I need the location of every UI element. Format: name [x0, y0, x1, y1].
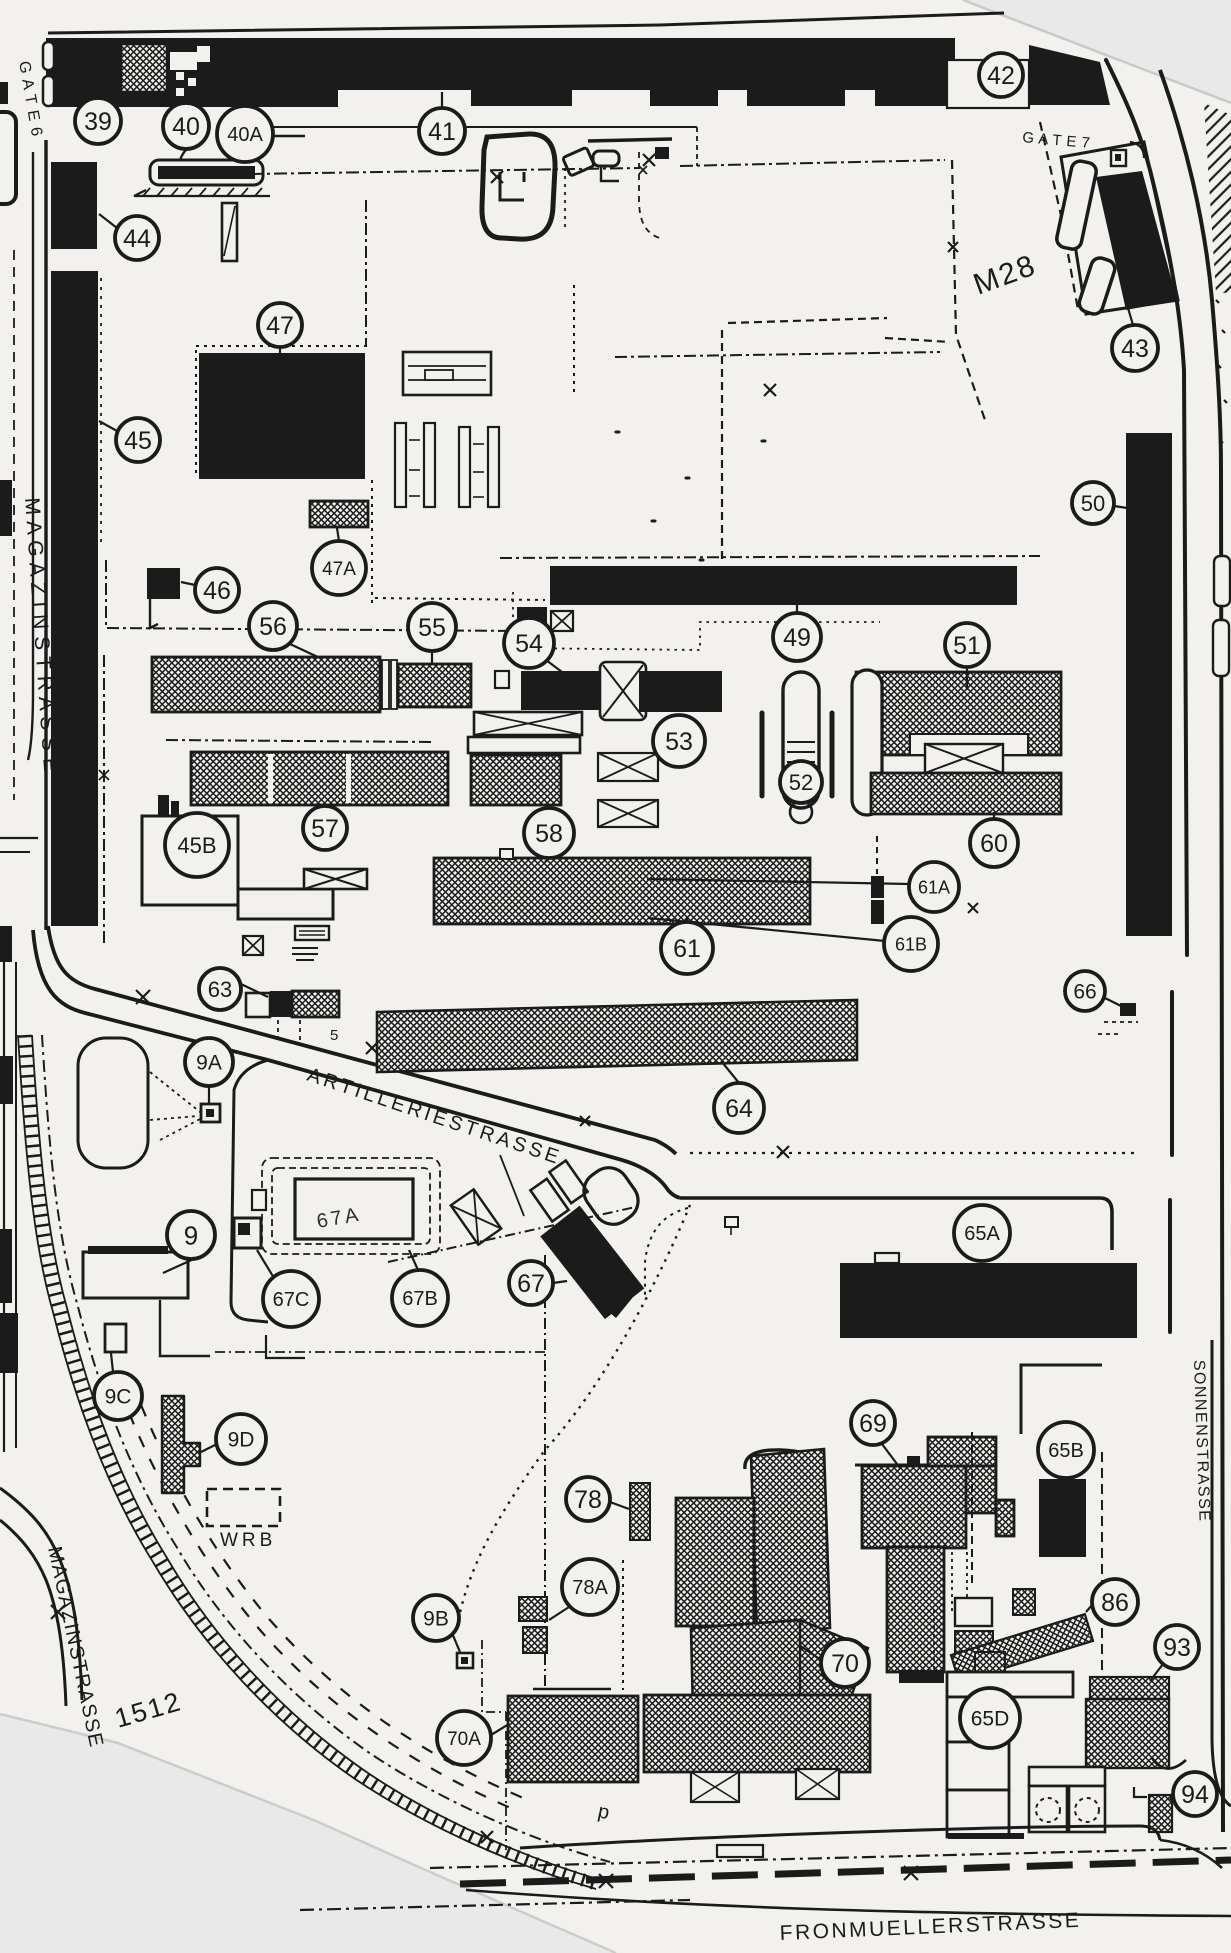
svg-text:56: 56 — [259, 613, 287, 641]
svg-text:78: 78 — [574, 1486, 602, 1514]
svg-text:58: 58 — [535, 820, 563, 848]
svg-text:65B: 65B — [1048, 1440, 1084, 1462]
svg-text:49: 49 — [783, 624, 811, 652]
svg-text:63: 63 — [208, 977, 232, 1002]
svg-text:64: 64 — [725, 1095, 753, 1123]
svg-text:69: 69 — [859, 1410, 887, 1438]
svg-text:WRB: WRB — [220, 1530, 276, 1551]
svg-text:61B: 61B — [895, 934, 927, 954]
svg-text:93: 93 — [1163, 1634, 1191, 1662]
svg-text:60: 60 — [980, 830, 1008, 858]
svg-text:61: 61 — [673, 935, 701, 963]
svg-text:65D: 65D — [971, 1708, 1010, 1731]
svg-text:78A: 78A — [572, 1577, 608, 1599]
svg-text:9C: 9C — [105, 1386, 132, 1409]
svg-text:70A: 70A — [447, 1729, 481, 1750]
svg-text:86: 86 — [1101, 1589, 1129, 1617]
svg-text:51: 51 — [953, 632, 981, 660]
svg-text:50: 50 — [1081, 491, 1105, 516]
svg-text:57: 57 — [311, 815, 339, 843]
svg-text:45: 45 — [124, 427, 152, 455]
svg-text:44: 44 — [123, 225, 151, 253]
svg-text:43: 43 — [1121, 335, 1149, 363]
svg-text:53: 53 — [665, 728, 693, 756]
svg-text:9A: 9A — [196, 1052, 222, 1075]
svg-text:40: 40 — [172, 113, 200, 141]
svg-text:70: 70 — [831, 1650, 859, 1678]
svg-text:67C: 67C — [273, 1289, 310, 1311]
svg-text:67: 67 — [517, 1270, 545, 1298]
svg-text:54: 54 — [515, 630, 543, 658]
svg-text:66: 66 — [1073, 981, 1096, 1004]
svg-text:5: 5 — [330, 1027, 338, 1044]
svg-text:45B: 45B — [177, 833, 216, 858]
svg-text:9B: 9B — [423, 1608, 449, 1631]
svg-text:9: 9 — [184, 1220, 198, 1250]
svg-text:47: 47 — [266, 312, 294, 340]
svg-text:39: 39 — [84, 108, 112, 136]
svg-text:52: 52 — [789, 770, 813, 795]
svg-text:65A: 65A — [964, 1223, 1000, 1245]
svg-text:9D: 9D — [228, 1429, 255, 1452]
svg-text:47A: 47A — [322, 559, 356, 580]
svg-text:40A: 40A — [227, 124, 263, 146]
svg-text:42: 42 — [987, 62, 1015, 90]
svg-text:61A: 61A — [918, 877, 950, 897]
svg-text:55: 55 — [418, 614, 446, 642]
svg-text:94: 94 — [1181, 1781, 1209, 1809]
svg-text:67B: 67B — [402, 1288, 438, 1310]
svg-text:46: 46 — [203, 577, 231, 605]
svg-text:41: 41 — [428, 118, 456, 146]
